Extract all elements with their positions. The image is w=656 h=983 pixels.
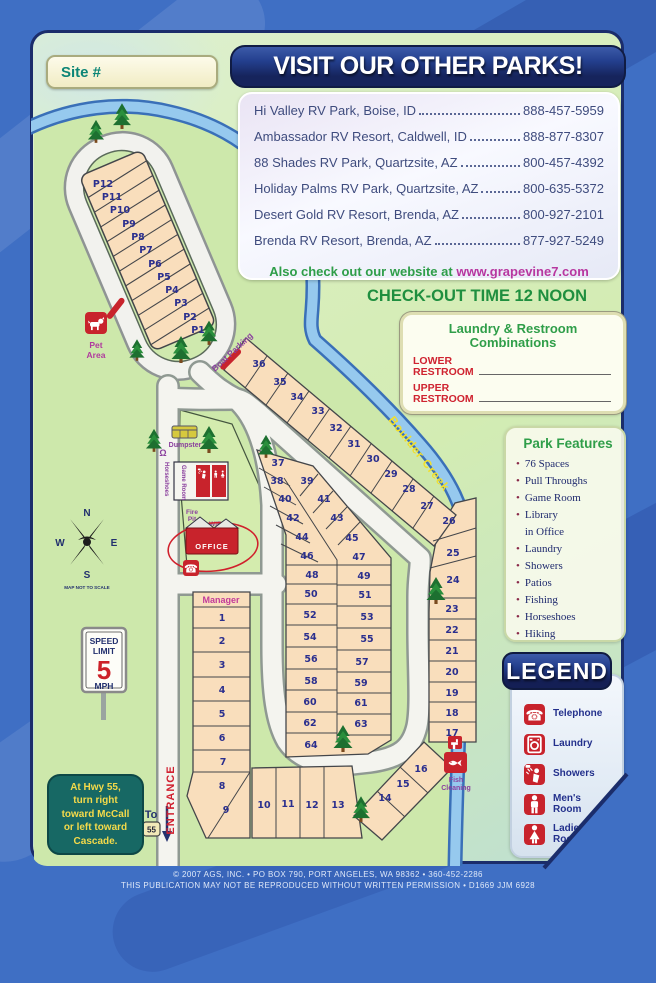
pet-area-icon [85,312,107,334]
site-number: 8 [219,781,226,792]
ladies-room-icon [524,824,545,845]
site-number: 14 [378,793,392,804]
manager-label: Manager [202,595,240,605]
other-parks-panel: Hi Valley RV Park, Boise, ID 888-457-595… [238,92,620,280]
site-number: 54 [303,632,317,643]
dumpster-icon [172,426,197,438]
site-number: 27 [420,501,433,512]
site-number: 29 [384,469,397,480]
laundry-icon [524,734,545,755]
game-room-label: Game Room [180,465,186,500]
park-row: 88 Shades RV Park, Quartzsite, AZ 800-45… [254,155,604,181]
feature-item: •Horseshoes [516,609,620,626]
site-number: 20 [445,667,459,678]
bullet-icon: • [516,609,520,626]
site-number: 31 [347,439,360,450]
site-number: 12 [305,800,318,811]
site-number: 5 [219,709,226,720]
telephone-icon [183,560,199,576]
site-number: P2 [183,312,197,323]
park-name: 88 Shades RV Park, Quartzsite, AZ [254,155,458,170]
site-number: 25 [446,548,459,559]
site-number: P8 [131,232,145,243]
upper-restroom-row: UPPER RESTROOM [413,383,613,404]
campground-map-page: { "site_box": { "label": "Site #" }, "ot… [0,0,656,901]
bullet-icon: • [516,490,520,507]
site-number: 2 [219,636,226,647]
compass-s: S [84,570,91,581]
fish-cleaning-label-1: Fish [449,777,463,784]
site-number: 49 [357,571,370,582]
site-number: 28 [402,484,416,495]
site-number: 1 [219,613,226,624]
site-number: 10 [257,800,271,811]
site-number: 22 [445,625,458,636]
park-name: Holiday Palms RV Park, Quartzsite, AZ [254,181,478,196]
bullet-icon: • [516,592,520,609]
site-number: 61 [354,698,367,709]
site-number: P6 [148,259,162,270]
site-number: 62 [303,718,316,729]
upper-restroom-label: UPPER RESTROOM [413,383,477,404]
lower-restroom-row: LOWER RESTROOM [413,356,613,377]
site-number: 55 [360,634,373,645]
site-number-box: Site # [46,55,218,89]
bullet-icon: • [516,575,520,592]
restroom-combinations-box: Laundry & Restroom Combinations LOWER RE… [400,312,626,414]
site-number: P4 [165,285,179,296]
pet-area-label-2: Area [87,350,106,360]
dumpster-label: Dumpster [169,442,202,449]
other-parks-title: VISIT OUR OTHER PARKS! [273,52,582,81]
to-label: To [145,809,158,821]
feature-item: •Patios [516,575,620,592]
site-number: P3 [174,298,188,309]
legend-label: Showers [553,769,595,780]
bullet-icon: • [516,558,520,575]
park-features-title: Park Features [516,436,620,451]
site-number: 16 [414,764,428,775]
park-phone: 888-457-5959 [523,103,604,118]
site-number: P1 [191,325,205,336]
feature-item: •Pull Throughs [516,473,620,490]
site-number-label: Site # [61,64,101,81]
compass-w: W [55,538,65,549]
site-number: P7 [139,245,153,256]
park-phone: 888-877-8307 [523,129,604,144]
bullet-icon: • [516,507,520,541]
footer-line-1: © 2007 AGS, INC. • PO BOX 790, PORT ANGE… [0,870,656,879]
park-phone: 877-927-5249 [523,233,604,248]
lower-restroom-label: LOWER RESTROOM [413,356,477,377]
site-number: 23 [445,604,458,615]
website-line: Also check out our website at www.grapev… [254,264,604,279]
bullet-icon: • [516,541,520,558]
site-number: 42 [286,513,299,524]
site-number: 39 [300,476,313,487]
park-row: Desert Gold RV Resort, Brenda, AZ 800-92… [254,207,604,233]
checkout-time-notice: CHECK-OUT TIME 12 NOON [352,287,602,306]
fish-cleaning-label-2: Cleaning [441,785,471,792]
site-number: 46 [300,551,314,562]
park-name: Brenda RV Resort, Brenda, AZ [254,233,432,248]
entrance-label: ENTRANCE [165,765,177,834]
site-number: 34 [290,392,304,403]
legend-label: Men's Room [553,794,581,815]
combination-blank-line [479,356,611,375]
site-number: P10 [110,205,131,216]
feature-item: •Game Room [516,490,620,507]
feature-item: •76 Spaces [516,456,620,473]
park-phone: 800-635-5372 [523,181,604,196]
dotted-leader [470,139,520,141]
horseshoe-icon: Ω [159,448,166,458]
park-phone: 800-457-4392 [523,155,604,170]
park-row: Holiday Palms RV Park, Quartzsite, AZ 80… [254,181,604,207]
feature-item: •Fishing [516,592,620,609]
legend-banner: LEGEND [502,652,612,690]
horseshoes-label: Horseshoes [163,462,169,497]
site-number: 50 [304,589,318,600]
legend-label: Laundry [553,739,592,750]
site-number: 36 [252,359,266,370]
site-number: 64 [304,740,318,751]
office-label: OFFICE [195,542,229,551]
site-number: 24 [446,575,460,586]
site-number: 33 [311,406,324,417]
site-number: 19 [445,688,458,699]
other-parks-banner: VISIT OUR OTHER PARKS! [230,45,626,88]
combination-blank-line [479,383,611,402]
site-number: 40 [278,494,292,505]
website-prefix: Also check out our website at [269,264,456,279]
park-phone: 800-927-2101 [523,207,604,222]
legend-panel: Telephone Laundry Showers Men's Room Lad… [510,674,624,858]
dotted-leader [481,191,520,193]
site-number: 38 [270,476,284,487]
site-number: 52 [303,610,316,621]
mens-room-icon [524,794,545,815]
site-number: 26 [442,516,456,527]
highway-directions-text: At Hwy 55, turn right toward McCall or l… [62,781,130,849]
bullet-icon: • [516,473,520,490]
legend-row: Men's Room [524,794,622,815]
compass-e: E [111,538,118,549]
showers-icon [524,764,545,785]
bullet-icon: • [516,626,520,643]
site-number: 7 [220,757,227,768]
site-number: 57 [355,657,368,668]
legend-label: Ladies' Room [553,824,587,845]
fire-pit-label-1: Fire [186,509,198,516]
site-number: 48 [305,570,319,581]
map-scale-note: MAP NOT TO SCALE [64,585,110,590]
site-number: 21 [445,646,458,657]
site-number: 4 [219,685,226,696]
bullet-icon: • [516,456,520,473]
site-number: 30 [366,454,380,465]
site-number: 45 [345,533,358,544]
park-row: Ambassador RV Resort, Caldwell, ID 888-8… [254,129,604,155]
site-number: 56 [304,654,318,665]
dotted-leader [419,113,520,115]
legend-row: Telephone [524,704,622,725]
telephone-icon [524,704,545,725]
site-number: 51 [358,590,371,601]
park-name: Hi Valley RV Park, Boise, ID [254,103,416,118]
footer-line-2: THIS PUBLICATION MAY NOT BE REPRODUCED W… [0,881,656,890]
feature-item: •Hiking [516,626,620,643]
legend-row: Laundry [524,734,622,755]
site-number: 13 [331,800,344,811]
site-number: 47 [352,552,365,563]
site-number: 3 [219,660,226,671]
site-number: 32 [329,423,342,434]
park-row: Hi Valley RV Park, Boise, ID 888-457-595… [254,103,604,129]
site-number: 63 [354,719,367,730]
site-number: 59 [354,678,367,689]
site-number: 53 [360,612,373,623]
site-number: P9 [122,219,136,230]
site-number: 41 [317,494,330,505]
site-number: 37 [271,458,284,469]
highway-directions-box: At Hwy 55, turn right toward McCall or l… [47,774,144,855]
speed-sign-unit: MPH [95,681,114,691]
park-features-box: Park Features •76 Spaces •Pull Throughs … [504,426,626,642]
legend-label: Telephone [553,709,602,720]
site-number: 58 [304,676,318,687]
site-number: P11 [102,192,122,203]
pet-area-label-1: Pet [89,340,102,350]
site-number: P12 [93,179,113,190]
site-number: 60 [303,697,317,708]
park-name: Ambassador RV Resort, Caldwell, ID [254,129,467,144]
legend-row: Ladies' Room [524,824,622,845]
feature-item: •Showers [516,558,620,575]
dotted-leader [461,165,521,167]
site-number: 43 [330,513,343,524]
highway-shield-label: 55 [147,826,156,835]
park-row: Brenda RV Resort, Brenda, AZ 877-927-524… [254,233,604,259]
site-number: 17 [445,728,458,739]
legend-row: Showers [524,764,622,785]
combinations-title: Laundry & Restroom Combinations [413,322,613,350]
website-link[interactable]: www.grapevine7.com [456,264,588,279]
site-number: 11 [281,799,294,810]
feature-item: •Laundry [516,541,620,558]
site-number: 9 [223,805,230,816]
site-number: 35 [273,377,286,388]
site-number: 6 [219,733,226,744]
site-number: 44 [295,532,309,543]
compass-n: N [83,508,90,519]
speed-sign-line1: SPEED [90,636,119,646]
site-number: P5 [157,272,171,283]
dotted-leader [462,217,520,219]
site-number: 15 [396,779,409,790]
dotted-leader [435,243,521,245]
park-name: Desert Gold RV Resort, Brenda, AZ [254,207,459,222]
legend-title: LEGEND [506,658,608,685]
feature-item: •Library in Office [516,507,620,541]
site-number: 18 [445,708,459,719]
